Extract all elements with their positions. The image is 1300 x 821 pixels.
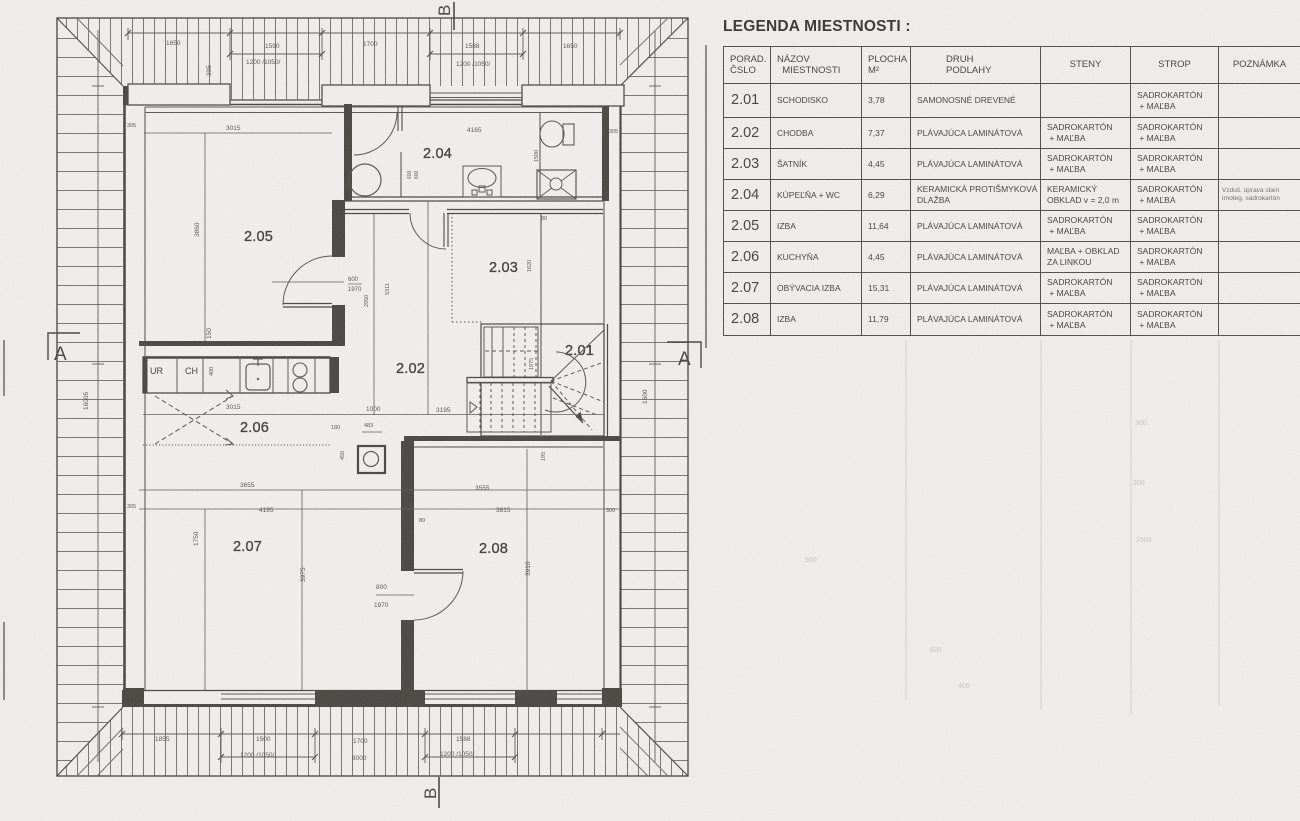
svg-text:195: 195 [541,452,547,461]
svg-text:B: B [421,788,440,799]
svg-text:2.08: 2.08 [479,541,508,557]
svg-text:3555: 3555 [475,485,490,492]
svg-text:2.02: 2.02 [396,361,425,377]
svg-text:2.01: 2.01 [565,343,594,359]
svg-text:1650: 1650 [563,43,578,50]
svg-text:400: 400 [958,683,970,690]
svg-text:2950: 2950 [364,295,370,307]
svg-text:1200 /1050/: 1200 /1050/ [440,751,475,758]
svg-text:305: 305 [206,65,213,76]
svg-text:3975: 3975 [300,567,307,582]
svg-text:1588: 1588 [456,736,471,743]
svg-text:1500: 1500 [256,736,271,743]
svg-text:UR: UR [150,366,163,376]
svg-text:305: 305 [609,129,618,135]
svg-text:500: 500 [805,557,817,564]
svg-text:305: 305 [127,123,136,129]
svg-text:1200 /1050/: 1200 /1050/ [246,59,281,66]
svg-text:1975: 1975 [529,358,535,370]
svg-text:2.04: 2.04 [423,146,452,162]
svg-text:2.07: 2.07 [233,539,262,555]
svg-text:1200 /1050/: 1200 /1050/ [240,752,275,759]
svg-text:3655: 3655 [240,482,255,489]
svg-text:3860: 3860 [194,222,201,237]
svg-text:1600: 1600 [642,389,649,404]
svg-text:1588: 1588 [465,43,480,50]
svg-text:400: 400 [209,367,215,376]
svg-text:3815: 3815 [496,507,511,514]
svg-text:3910: 3910 [525,561,532,576]
svg-text:2.05: 2.05 [244,229,273,245]
svg-text:1970: 1970 [348,287,362,293]
svg-text:600: 600 [407,170,413,179]
svg-text:1750: 1750 [193,531,200,546]
svg-text:4195: 4195 [259,507,274,514]
svg-text:3015: 3015 [226,404,241,411]
svg-text:300: 300 [1135,420,1147,427]
svg-text:1970: 1970 [374,602,389,609]
svg-text:1200 /1050/: 1200 /1050/ [456,61,491,68]
svg-text:300: 300 [1133,480,1145,487]
svg-text:150: 150 [206,328,213,339]
svg-text:800: 800 [376,584,387,591]
svg-text:1620: 1620 [527,260,533,272]
svg-text:80: 80 [419,518,425,524]
svg-text:80: 80 [541,216,547,222]
svg-text:450: 450 [340,451,346,460]
svg-text:2.06: 2.06 [240,420,269,436]
svg-text:483: 483 [364,423,373,429]
svg-text:1590: 1590 [265,43,280,50]
svg-text:4165: 4165 [467,127,482,134]
svg-text:8000: 8000 [352,755,367,762]
svg-text:600: 600 [348,277,359,283]
svg-text:180: 180 [331,425,340,431]
svg-text:300: 300 [606,508,615,514]
svg-text:5311: 5311 [385,283,391,295]
svg-text:1700: 1700 [363,41,378,48]
svg-text:305: 305 [127,504,136,510]
svg-text:600: 600 [930,647,942,654]
svg-text:1500: 1500 [534,150,540,162]
svg-text:600: 600 [414,170,420,179]
svg-text:1000: 1000 [366,406,381,413]
svg-text:1500: 1500 [1136,537,1152,544]
svg-text:A: A [54,344,67,365]
svg-text:1650: 1650 [166,40,181,47]
svg-text:1855: 1855 [155,736,170,743]
svg-text:2.03: 2.03 [489,260,518,276]
svg-text:CH: CH [185,366,198,376]
svg-text:3195: 3195 [436,407,451,414]
svg-text:3015: 3015 [226,125,241,132]
svg-text:1700: 1700 [353,738,368,745]
svg-text:A: A [678,349,691,370]
svg-text:B: B [435,5,454,16]
svg-text:16005: 16005 [83,392,90,410]
